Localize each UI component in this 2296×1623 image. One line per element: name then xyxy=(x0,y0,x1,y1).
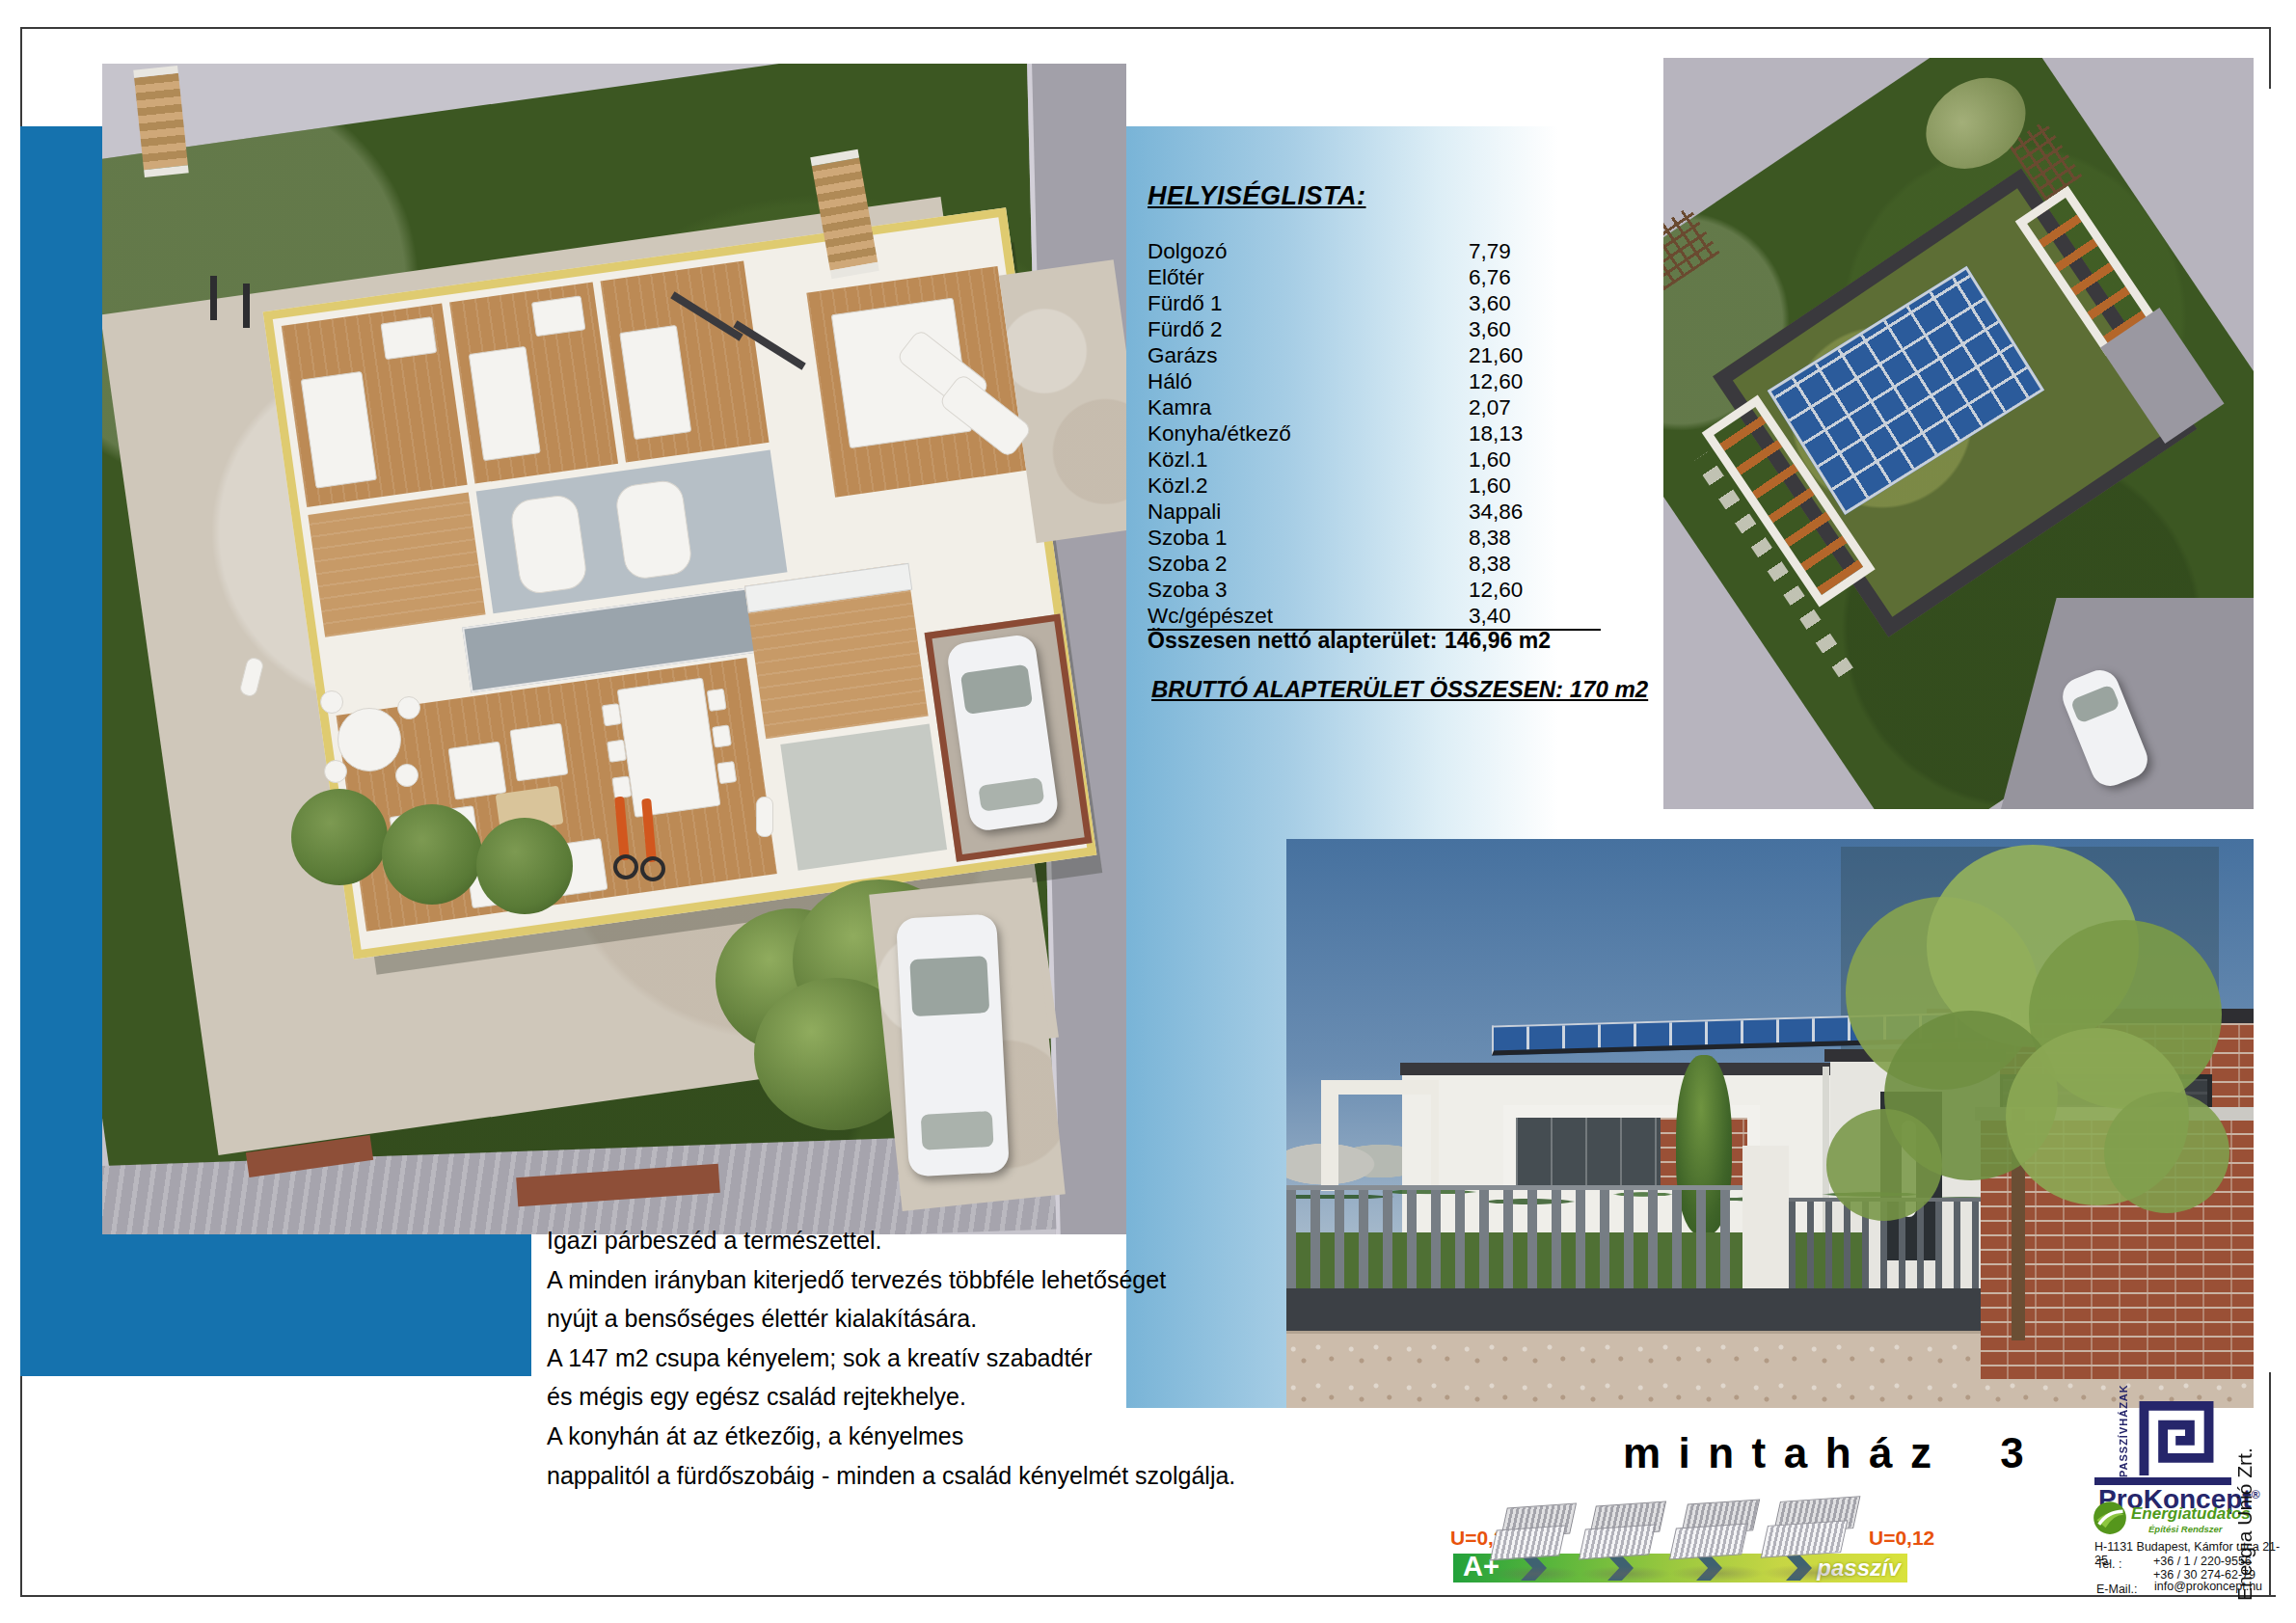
desk xyxy=(380,316,437,360)
description-line: Igazi párbeszéd a természettel. xyxy=(547,1221,1241,1260)
energiatudatos-leaf-icon xyxy=(2093,1501,2127,1535)
bathtub xyxy=(509,493,589,596)
round-table xyxy=(338,708,401,771)
chair xyxy=(320,690,343,714)
insulation-block-image xyxy=(1761,1489,1859,1583)
white-gate-pillar xyxy=(1742,1146,1789,1290)
desk xyxy=(531,295,586,337)
room-row: Garázs21,60 xyxy=(1148,342,1601,368)
room-row: Nappali34,86 xyxy=(1148,499,1601,525)
room-row: Kamra2,07 xyxy=(1148,394,1601,420)
room-row: Konyha/étkező18,13 xyxy=(1148,420,1601,446)
car-windshield xyxy=(2070,684,2120,723)
room-row: Dolgozó7,79 xyxy=(1148,238,1601,264)
driveway-car xyxy=(896,913,1010,1177)
email-label: E-Mail.: xyxy=(2096,1582,2137,1596)
u-value-right: U=0,12 xyxy=(1869,1527,1934,1550)
chair xyxy=(395,764,419,787)
aerial-render xyxy=(1663,58,2254,809)
brochure-page: HELYISÉGLISTA: Dolgozó7,79 Előtér6,76 Fü… xyxy=(0,0,2296,1623)
frame-bottom xyxy=(20,1595,2276,1597)
tree-canopy xyxy=(2104,1092,2229,1213)
bush xyxy=(291,789,388,885)
street-render xyxy=(1286,839,2254,1408)
energia-unio-vertical-label: Energia Unió Zrt. xyxy=(2233,1377,2256,1601)
car-rear-window xyxy=(978,777,1044,812)
house-terrace xyxy=(999,259,1126,543)
description-line: A 147 m2 csupa kényelem; sok a kreatív s… xyxy=(547,1339,1241,1378)
bicycle-wheel xyxy=(640,856,665,881)
house-parapet xyxy=(1400,1063,1836,1075)
room-list: HELYISÉGLISTA: Dolgozó7,79 Előtér6,76 Fü… xyxy=(1148,181,1649,211)
fence-base xyxy=(1286,1288,1986,1333)
car-windshield xyxy=(910,956,989,1016)
description-line: nyújt a bensőséges élettér kialakítására… xyxy=(547,1299,1241,1339)
armchair xyxy=(447,742,506,800)
chair xyxy=(607,740,627,763)
room-row: Előtér6,76 xyxy=(1148,264,1601,290)
description-line: A minden irányban kiterjedő tervezés töb… xyxy=(547,1260,1241,1300)
car-rear-window xyxy=(920,1111,994,1150)
bathtub xyxy=(613,478,693,582)
room-list-heading: HELYISÉGLISTA: xyxy=(1148,181,1649,211)
room-row: Szoba 28,38 xyxy=(1148,551,1601,577)
insulation-block-image xyxy=(1669,1493,1758,1583)
tel-label: Tel. : xyxy=(2096,1557,2121,1571)
description-line: A konyhán át az étkezőig, a kényelmes xyxy=(547,1417,1241,1456)
page-title: mintaház 3 xyxy=(1610,1429,2054,1477)
lamp-post xyxy=(210,276,217,320)
room-row: Közl.21,60 xyxy=(1148,473,1601,499)
description-line: és mégis egy egész család rejtekhelye. xyxy=(547,1377,1241,1417)
room-wc-gepeszet xyxy=(780,723,947,870)
dining-table xyxy=(617,678,721,818)
chair xyxy=(707,689,727,712)
gross-area-line: BRUTTÓ ALAPTERÜLET ÖSSZESEN: 170 m2 xyxy=(1151,676,1648,703)
chair xyxy=(712,724,732,747)
hall xyxy=(308,493,485,637)
insulation-block-image xyxy=(1490,1497,1575,1583)
room-row: Közl.11,60 xyxy=(1148,446,1601,473)
metal-fence xyxy=(1286,1185,1742,1298)
bush xyxy=(382,804,482,905)
description-line: nappalitól a fürdőszobáig - minden a csa… xyxy=(547,1456,1241,1496)
insulation-block-image xyxy=(1579,1495,1665,1583)
chair xyxy=(611,775,632,798)
bush xyxy=(476,818,573,914)
bicycle-wheel xyxy=(613,854,638,879)
chair xyxy=(324,760,347,783)
room-row: Wc/gépészet3,40 xyxy=(1148,603,1601,631)
room-row: Háló12,60 xyxy=(1148,368,1601,394)
net-area-total: Összesen nettó alapterület: 146,96 m2 xyxy=(1148,628,1649,657)
room-row: Fürdő 13,60 xyxy=(1148,290,1601,316)
lamp-post xyxy=(243,284,250,328)
frame-top xyxy=(20,27,2271,29)
mannequin-figure xyxy=(756,797,773,837)
chair xyxy=(716,761,737,784)
description-paragraph: Igazi párbeszéd a természettel. A minden… xyxy=(547,1221,1241,1495)
passzivhazak-vertical-label: PASSZÍVHÁZAK xyxy=(2118,1400,2129,1477)
room-list-rows: Dolgozó7,79 Előtér6,76 Fürdő 13,60 Fürdő… xyxy=(1148,238,1601,631)
tree-canopy xyxy=(1826,1109,1942,1221)
room-row: Szoba 312,60 xyxy=(1148,577,1601,603)
chair xyxy=(397,696,420,719)
room-row: Szoba 18,38 xyxy=(1148,525,1601,551)
prokoncept-meander-logo xyxy=(2133,1396,2220,1475)
frame-right-stub xyxy=(2269,27,2271,89)
floorplan-render xyxy=(102,64,1126,1234)
armchair xyxy=(509,723,568,782)
chair xyxy=(602,703,622,726)
tagline-epitesi-rendszer: Építési Rendszer xyxy=(2148,1524,2223,1534)
room-row: Fürdő 23,60 xyxy=(1148,316,1601,342)
car-windshield xyxy=(960,664,1033,715)
